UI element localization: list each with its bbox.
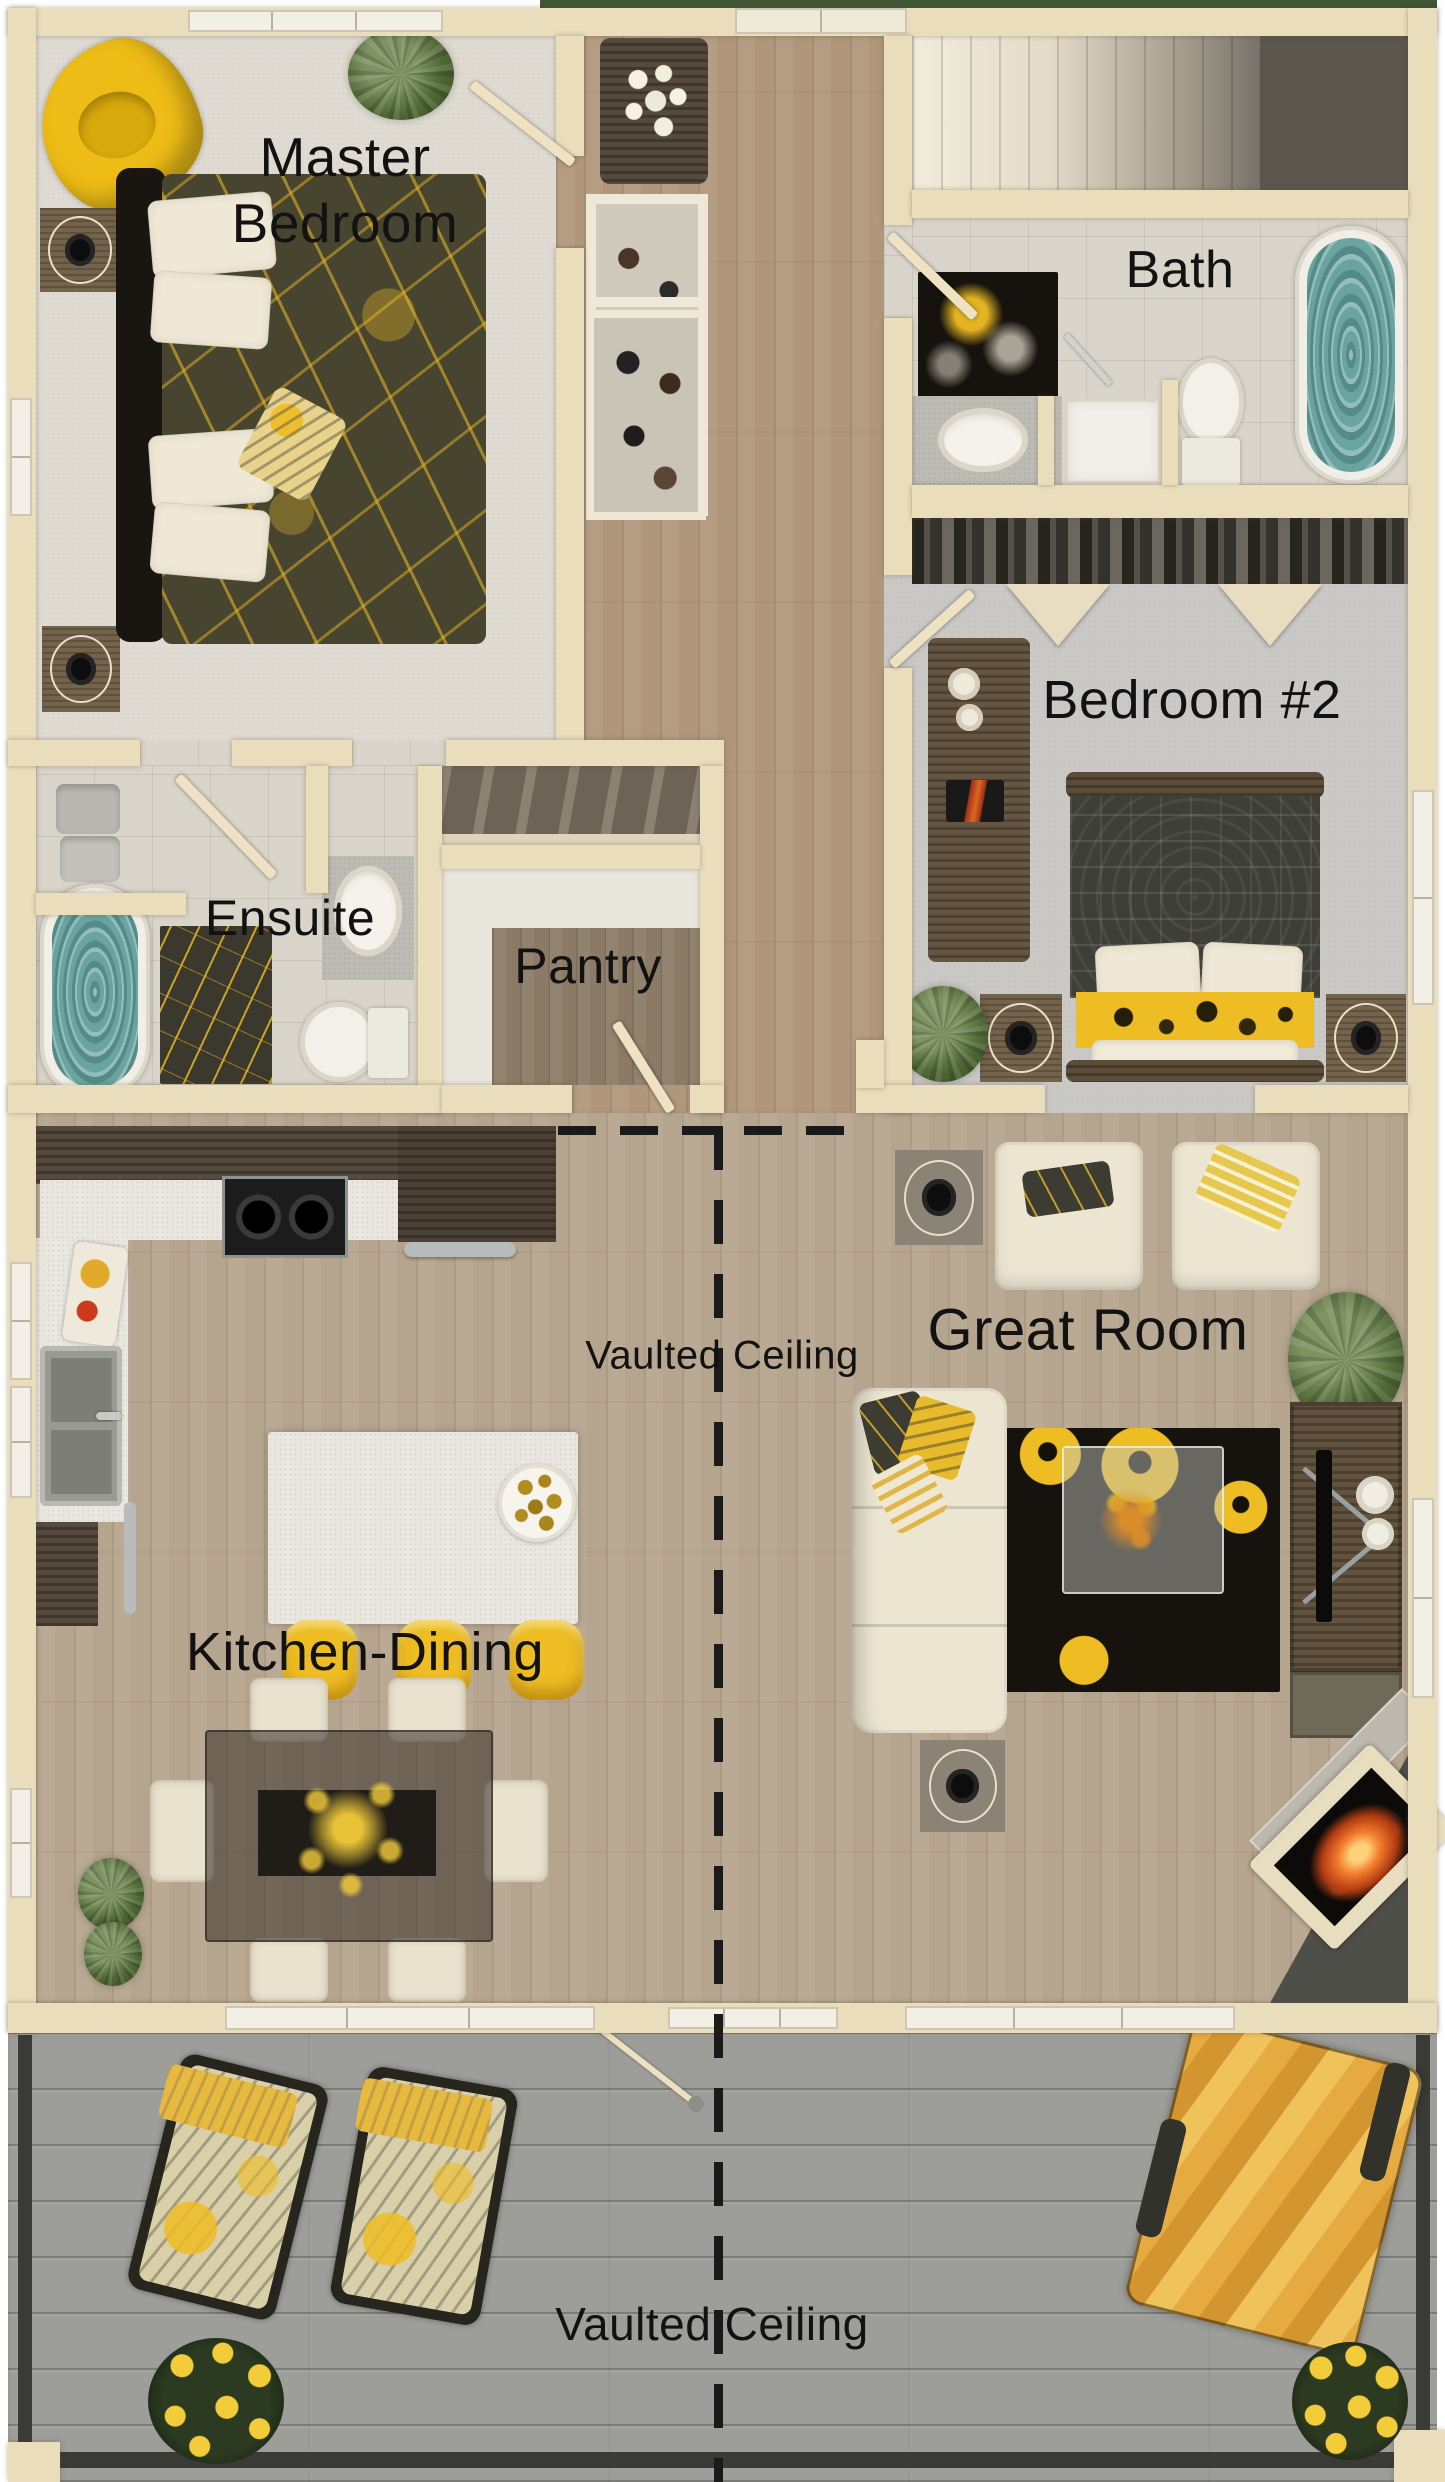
dining-chair-bottom-2 — [388, 1938, 466, 2002]
label-bath: Bath — [1126, 240, 1235, 300]
floor-plan: Master Bedroom Bath Bedroom #2 Ensuite P… — [0, 0, 1445, 2482]
dining-centerpiece — [278, 1754, 418, 1910]
kitchen-dishwasher-handle — [124, 1502, 136, 1614]
label-pantry: Pantry — [514, 937, 662, 995]
bath-tub-water — [1307, 238, 1395, 472]
bedroom2-footboard — [1066, 1060, 1324, 1082]
desk-cup-2 — [956, 704, 983, 731]
entry-door — [735, 8, 907, 34]
wall-master-bottom-a — [8, 740, 140, 766]
console-bowl-2 — [1362, 1518, 1394, 1550]
label-master-line1: Master — [259, 126, 430, 188]
ensuite-rug — [160, 926, 272, 1084]
window-left-master — [10, 398, 32, 516]
wall-walkin-ensuite — [36, 893, 186, 915]
bath-shower — [1064, 398, 1162, 485]
label-bedroom2: Bedroom #2 — [1042, 669, 1341, 731]
desk-cup-1 — [948, 668, 980, 700]
label-great-room: Great Room — [928, 1297, 1249, 1364]
deck-post-bottom-left — [8, 2442, 60, 2482]
wall-stairs-bath — [912, 190, 1408, 218]
bath-toilet-bowl — [1178, 358, 1244, 446]
kitchen-faucet — [96, 1412, 122, 1420]
patio-door-2 — [905, 2006, 1235, 2030]
label-vaulted-ceiling-main: Vaulted Ceiling — [585, 1334, 859, 1379]
wall-hall-right-c — [884, 668, 912, 1113]
kitchen-base-cabinet — [36, 1522, 98, 1626]
wall-master-hall-a — [556, 36, 584, 156]
wall-closet-pantry — [442, 845, 700, 869]
ensuite-toilet-tank — [368, 1008, 408, 1078]
wall-hall-right-b — [884, 318, 912, 575]
master-nightstand-top — [40, 208, 120, 292]
greatroom-speaker-table-bottom — [920, 1740, 1005, 1832]
ensuite-toilet-bowl — [300, 1002, 378, 1082]
wall-shower-left — [1038, 396, 1054, 485]
window-master-top — [188, 10, 443, 32]
kitchen-sink — [40, 1346, 122, 1506]
wall-pantry-bottom-a — [442, 1085, 572, 1113]
section-line-vertical — [714, 1126, 723, 2482]
deck-flower-pot-right — [1292, 2342, 1408, 2460]
deck-railing-left — [18, 2035, 32, 2465]
pantry-closet-shelf — [442, 834, 700, 845]
greatroom-armchair-1 — [995, 1142, 1143, 1290]
master-pillow-2 — [150, 270, 273, 350]
desk-book — [946, 780, 1004, 822]
bedroom2-headboard — [1066, 772, 1324, 798]
closet-hanger-right — [1218, 584, 1322, 646]
window-right-greatroom — [1412, 1498, 1434, 1698]
deck-flower-pot-left — [148, 2338, 284, 2464]
walkin-towel-1 — [56, 784, 120, 834]
master-plant — [348, 28, 454, 120]
wall-left — [8, 8, 36, 2032]
entry-flowers — [614, 58, 694, 144]
patio-window-mid — [668, 2007, 838, 2029]
window-left-kitchen-2 — [10, 1386, 32, 1498]
closet-hanger-left — [1006, 584, 1110, 646]
coffee-table-flowers — [1096, 1478, 1166, 1562]
wall-master-bottom-c — [446, 740, 724, 766]
wall-master-bottom-b — [232, 740, 352, 766]
threshold-greatroom — [1045, 1085, 1255, 1113]
wall-hall-stub — [856, 1040, 884, 1088]
label-master-bedroom: Master Bedroom — [232, 124, 459, 256]
dining-chair-bottom-1 — [250, 1938, 328, 2002]
section-line-horizontal — [558, 1126, 864, 1135]
dining-plant — [78, 1858, 144, 1930]
label-vaulted-ceiling-deck: Vaulted Ceiling — [555, 2297, 869, 2351]
greatroom-speaker-table-top — [895, 1150, 983, 1245]
staircase — [912, 36, 1260, 190]
threshold-master — [556, 156, 584, 248]
dining-chair-right — [484, 1780, 548, 1882]
console-bowl-1 — [1356, 1476, 1394, 1514]
master-nightstand-bottom — [42, 626, 120, 712]
threshold-walkin — [140, 740, 232, 766]
bedroom2-closet — [912, 518, 1408, 584]
bedroom2-nightstand-right — [1326, 994, 1406, 1082]
wall-bath-bedroom2 — [912, 485, 1408, 518]
wall-pantry-left — [418, 766, 442, 1113]
window-right-bedroom2 — [1412, 790, 1434, 1005]
kitchen-handle — [404, 1242, 516, 1257]
deck-post-bottom-right — [1394, 2430, 1445, 2482]
kitchen-cabinet-block — [398, 1126, 556, 1242]
wall-shower-right — [1162, 380, 1178, 485]
threshold-ensuite — [352, 740, 446, 766]
bath-toilet-tank — [1182, 438, 1240, 486]
wall-walkin-stub — [306, 766, 328, 893]
wall-pantry-bottom-b — [690, 1085, 724, 1113]
wall-pantry-right — [700, 766, 724, 1113]
patio-door-1 — [225, 2006, 595, 2030]
window-left-kitchen-1 — [10, 1262, 32, 1380]
tv-screen — [1316, 1450, 1332, 1622]
ensuite-tub-water — [52, 896, 138, 1088]
label-master-line2: Bedroom — [232, 192, 459, 254]
wall-greatroom-top-b — [1255, 1085, 1408, 1113]
wall-ensuite-bottom — [8, 1085, 442, 1113]
label-kitchen-dining: Kitchen-Dining — [186, 1621, 544, 1683]
wall-hall-right-a — [884, 36, 912, 225]
window-left-dining — [10, 1788, 32, 1898]
wall-right — [1408, 8, 1437, 2032]
wall-greatroom-top-a — [856, 1085, 1045, 1113]
walkin-towel-2 — [60, 836, 120, 882]
wall-master-hall-b — [556, 248, 584, 740]
bath-sink — [938, 408, 1028, 472]
stair-landing — [1260, 36, 1408, 190]
master-pillow-4 — [149, 501, 271, 583]
deck-broom-head — [688, 2096, 704, 2112]
island-fruit-plate — [498, 1464, 576, 1542]
bedroom2-nightstand-left — [980, 994, 1062, 1082]
kitchen-stove — [222, 1176, 348, 1258]
bath-rug — [918, 272, 1058, 404]
label-ensuite: Ensuite — [205, 889, 375, 947]
dining-plant-lower — [84, 1922, 142, 1986]
hall-shoe-closet — [586, 310, 706, 520]
